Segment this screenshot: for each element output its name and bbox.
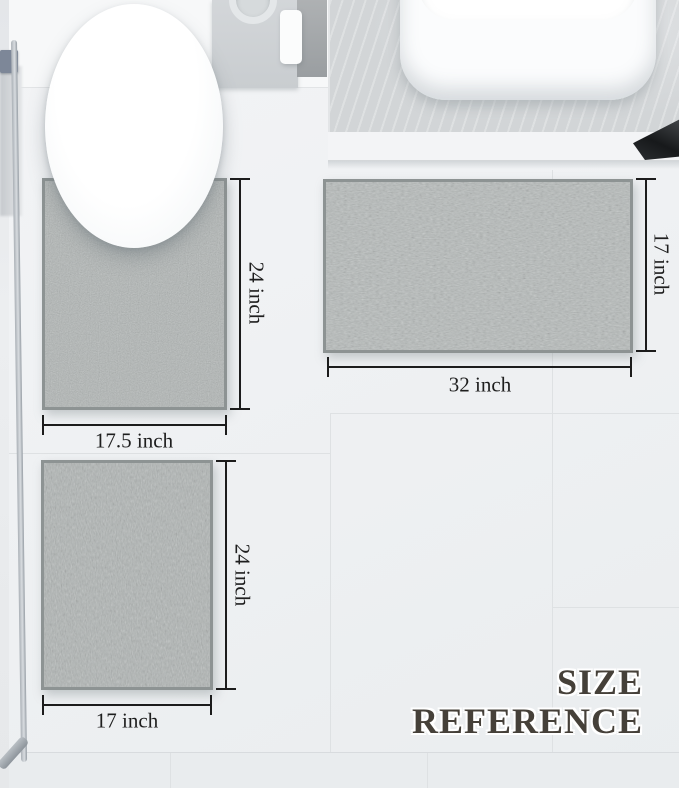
- toilet-seat-lid: [45, 4, 223, 248]
- dimension-line-large-height: [645, 178, 647, 352]
- tile-seam-horizontal: [330, 413, 679, 414]
- large-bath-rug: [323, 179, 633, 353]
- contour-mat-height-label: 24 inch: [244, 262, 269, 324]
- small-bath-rug: [41, 460, 213, 690]
- tile-seam-vertical: [330, 413, 331, 788]
- bathroom-size-reference-image: 24 inch 17.5 inch 17 inch 32 inch 24 inc…: [0, 0, 679, 788]
- counter-apron: [328, 132, 679, 161]
- tile-seam-vertical: [427, 753, 428, 788]
- large-rug-height-label: 17 inch: [649, 233, 674, 295]
- size-reference-title: SIZE REFERENCE: [412, 663, 643, 741]
- dimension-line-small-height: [225, 460, 227, 690]
- vanity-counter: [328, 0, 679, 164]
- title-line-1: SIZE: [412, 663, 643, 702]
- large-rug-width-label: 32 inch: [449, 373, 511, 398]
- sink-bowl: [418, 0, 638, 20]
- dimension-line-large-width: [327, 366, 632, 368]
- dimension-line-contour-width: [42, 424, 227, 426]
- counter-shadow: [328, 161, 679, 169]
- contour-mat-width-label: 17.5 inch: [95, 429, 173, 454]
- title-line-2: REFERENCE: [412, 702, 643, 741]
- dimension-line-contour-height: [239, 178, 241, 410]
- small-rug-width-label: 17 inch: [96, 709, 158, 734]
- small-rug-height-label: 24 inch: [230, 544, 255, 606]
- dimension-line-small-width: [42, 704, 212, 706]
- floor-tile-row: [0, 752, 679, 788]
- rug-texture: [326, 182, 630, 350]
- tile-seam-vertical: [170, 753, 171, 788]
- vessel-sink: [400, 0, 656, 100]
- bottle-on-tank: [280, 10, 302, 64]
- tile-seam-horizontal: [552, 607, 679, 608]
- rug-texture: [44, 463, 210, 687]
